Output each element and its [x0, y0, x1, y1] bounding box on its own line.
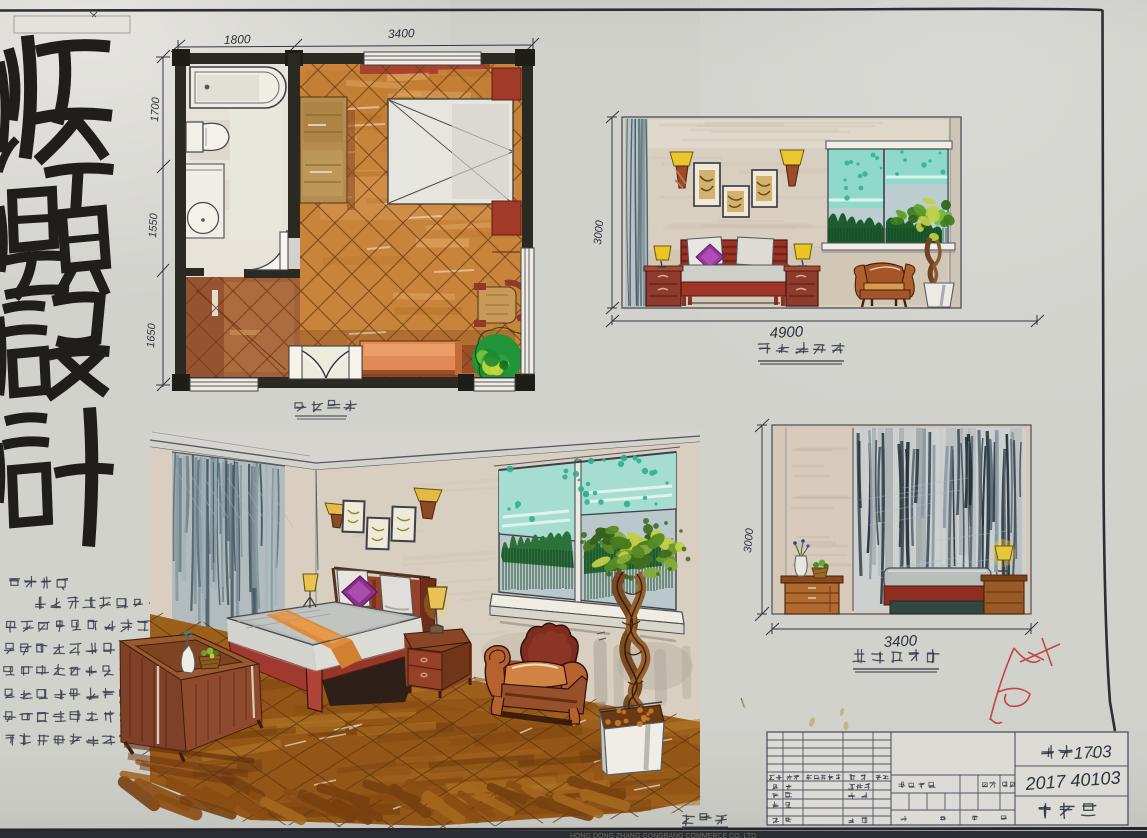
svg-text:3400: 3400 [883, 632, 918, 651]
svg-text:1700: 1700 [149, 96, 162, 122]
svg-text:3400: 3400 [388, 26, 415, 41]
svg-text:1703: 1703 [1073, 742, 1112, 763]
svg-text:3000: 3000 [742, 527, 756, 553]
svg-text:1650: 1650 [145, 322, 158, 348]
svg-text:3000: 3000 [592, 219, 606, 245]
svg-text:4900: 4900 [769, 323, 804, 342]
svg-text:1550: 1550 [147, 212, 160, 238]
svg-text:HONG DONG ZHANG GONGBANG COMME: HONG DONG ZHANG GONGBANG COMMERCE CO. LT… [570, 833, 756, 838]
svg-text:1800: 1800 [224, 32, 251, 47]
